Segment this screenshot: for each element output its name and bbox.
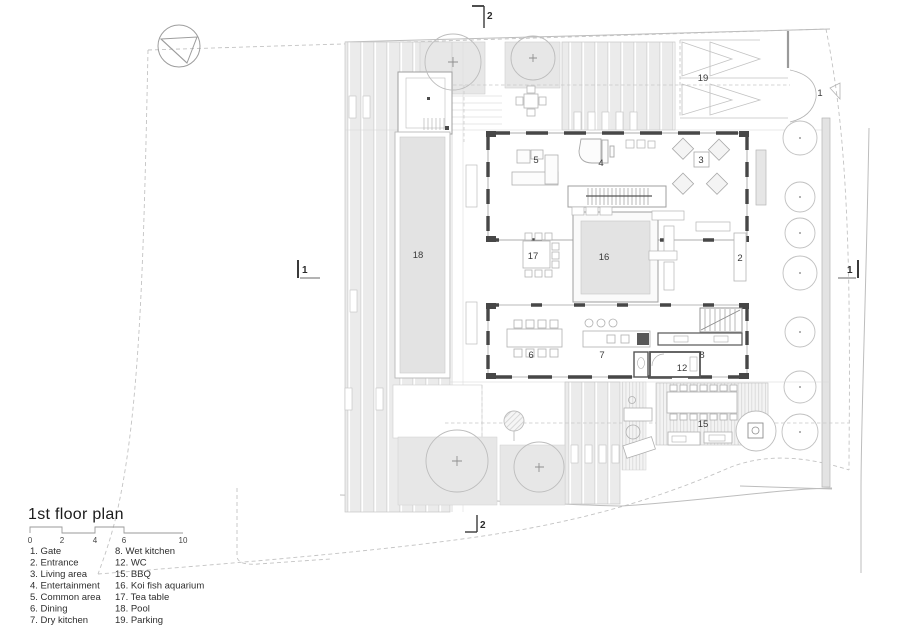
section-right-label: 1 (847, 265, 853, 276)
section-marker-bottom: 2 (465, 515, 486, 532)
legend-item: 12. WC (115, 558, 147, 569)
koi-pond (573, 212, 658, 302)
legend-column-1: 1. Gate 2. Entrance 3. Living area 4. En… (30, 546, 101, 626)
parking-label: 19 (698, 73, 709, 84)
legend-item: 15. BBQ (115, 569, 151, 580)
koi-label: 16 (599, 252, 610, 263)
scale-tick: 4 (93, 536, 98, 545)
legend-item: 19. Parking (115, 615, 163, 626)
legend-item: 8. Wet kitchen (115, 546, 175, 557)
common-area-label: 5 (533, 155, 538, 166)
scale-tick: 6 (122, 536, 127, 545)
legend-item: 7. Dry kitchen (30, 615, 88, 626)
living-area-label: 3 (698, 155, 703, 166)
bbq-label: 15 (698, 419, 709, 430)
legend: 1st floor plan 0 2 4 6 10 1. Gate 2. Ent… (28, 506, 205, 626)
tv-console (626, 140, 655, 148)
entertainment-label: 4 (598, 158, 603, 169)
scale-tick: 0 (28, 536, 33, 545)
pool-area: 18 (395, 132, 450, 378)
legend-column-2: 8. Wet kitchen 12. WC 15. BBQ 16. Koi fi… (115, 546, 204, 626)
tea-table-label: 17 (528, 251, 539, 262)
legend-item: 3. Living area (30, 569, 88, 580)
bbq-grill-tree (736, 411, 776, 451)
stairs-main (568, 186, 666, 207)
dry-kitchen-label: 7 (599, 350, 604, 361)
bbq-terrace: 15 (656, 383, 776, 451)
legend-item: 18. Pool (115, 604, 150, 615)
legend-item: 6. Dining (30, 604, 68, 615)
section-marker-right: 1 (838, 260, 858, 278)
dining-label: 6 (528, 350, 533, 361)
legend-item: 1. Gate (30, 546, 61, 557)
legend-item: 16. Koi fish aquarium (115, 581, 204, 592)
scale-bar: 0 2 4 6 10 (28, 527, 188, 545)
lower-wing: 6 7 8 12 (486, 303, 749, 379)
section-marker-left: 1 (298, 260, 320, 278)
page-title: 1st floor plan (28, 506, 124, 523)
bottom-terrace (393, 382, 849, 505)
floor-plan-drawing: 19 1 18 (0, 0, 900, 636)
scale-tick: 10 (179, 536, 188, 545)
outdoor-table (516, 86, 546, 116)
gate (788, 31, 840, 122)
pool-house (398, 72, 452, 134)
boundary-wall (822, 118, 830, 487)
wet-kitchen-label: 8 (699, 350, 704, 361)
section-left-label: 1 (302, 265, 308, 276)
section-bottom-label: 2 (480, 520, 486, 531)
legend-item: 4. Entertainment (30, 581, 100, 592)
bottom-louver-deck (565, 382, 620, 504)
section-marker-top: 2 (472, 6, 493, 28)
legend-item: 5. Common area (30, 592, 101, 603)
wc-room (634, 352, 700, 377)
stairs-secondary (700, 308, 742, 332)
section-top-label: 2 (487, 11, 493, 22)
floor-plan-page: 19 1 18 (0, 0, 900, 636)
planters (466, 165, 477, 344)
pool-label: 18 (413, 250, 424, 261)
legend-item: 2. Entrance (30, 558, 79, 569)
north-arrow-icon (158, 25, 200, 67)
parking-area (680, 40, 788, 118)
corridor-label: 2 (737, 253, 742, 264)
gate-label: 1 (817, 88, 822, 99)
wc-label: 12 (677, 363, 688, 374)
legend-item: 17. Tea table (115, 592, 169, 603)
bbq-counters (668, 432, 732, 445)
trees-right-column (782, 121, 818, 450)
scale-tick: 2 (60, 536, 65, 545)
